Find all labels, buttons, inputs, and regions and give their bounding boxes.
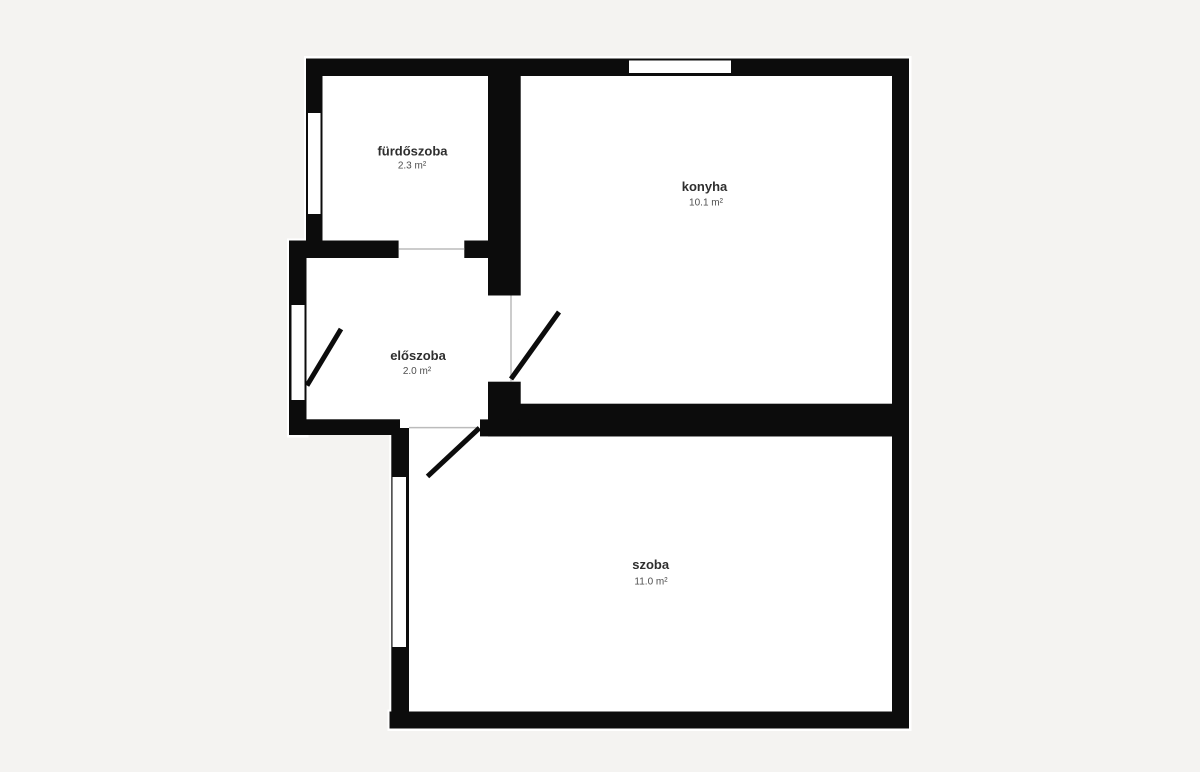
svg-text:10.1 m²: 10.1 m² — [689, 197, 724, 208]
svg-text:konyha: konyha — [682, 179, 728, 194]
svg-text:11.0 m²: 11.0 m² — [634, 576, 668, 587]
svg-text:2.0 m²: 2.0 m² — [403, 366, 432, 377]
svg-text:szoba: szoba — [632, 557, 670, 572]
svg-text:fürdőszoba: fürdőszoba — [377, 144, 448, 159]
svg-text:előszoba: előszoba — [390, 348, 446, 363]
svg-text:2.3 m²: 2.3 m² — [398, 161, 427, 172]
